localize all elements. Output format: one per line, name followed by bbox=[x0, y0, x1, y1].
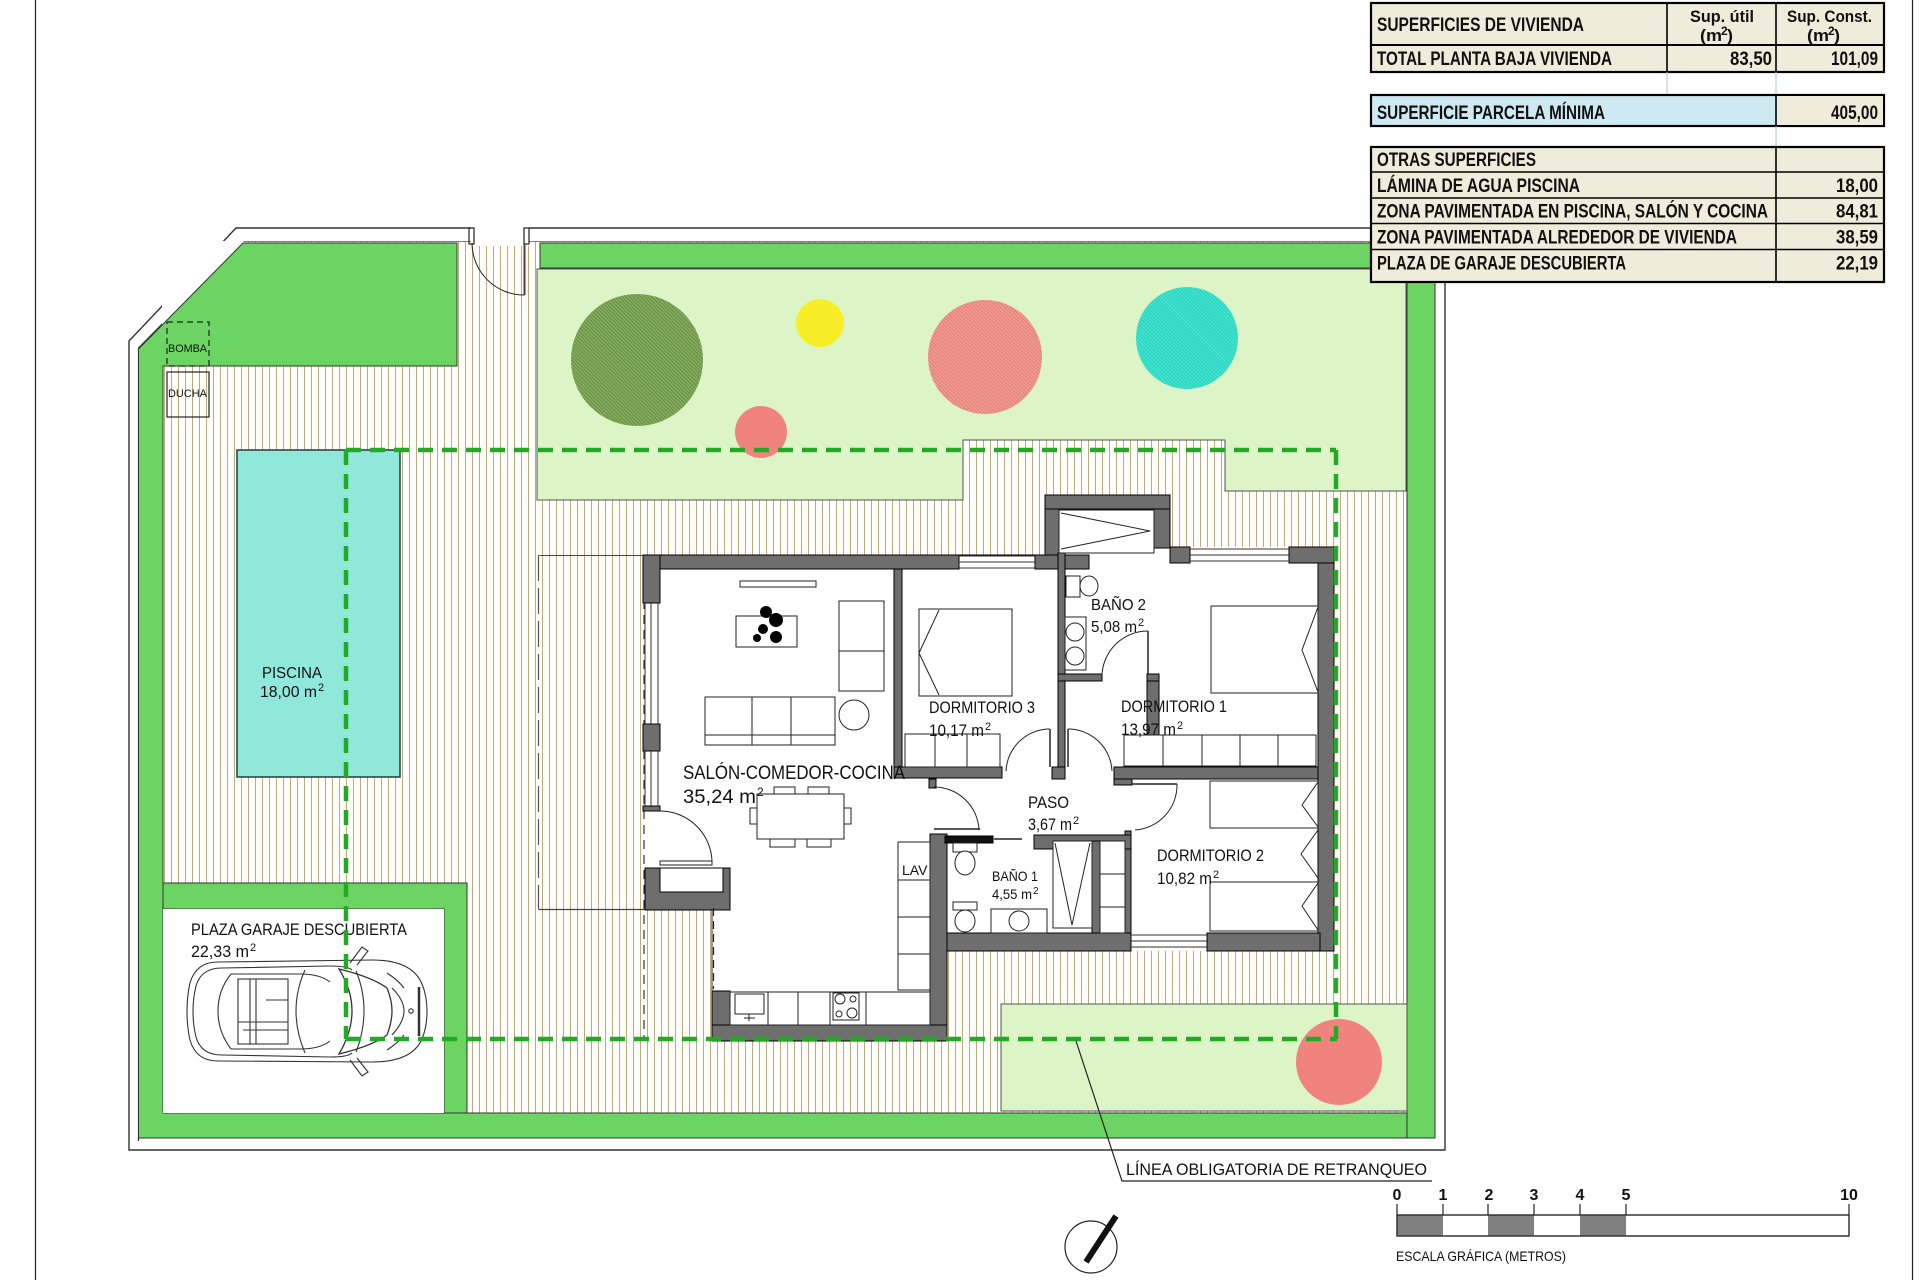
svg-text:ZONA PAVIMENTADA ALREDEDOR DE: ZONA PAVIMENTADA ALREDEDOR DE VIVIENDA bbox=[1377, 228, 1737, 249]
svg-text:10: 10 bbox=[1840, 1187, 1858, 1204]
svg-text:OTRAS SUPERFICIES: OTRAS SUPERFICIES bbox=[1377, 150, 1536, 171]
svg-text:LÁMINA DE AGUA PISCINA: LÁMINA DE AGUA PISCINA bbox=[1377, 175, 1580, 197]
svg-text:DORMITORIO 2: DORMITORIO 2 bbox=[1157, 846, 1264, 865]
svg-text:13,97 m: 13,97 m bbox=[1121, 720, 1176, 739]
svg-text:22,19: 22,19 bbox=[1836, 254, 1878, 275]
svg-text:BAÑO 1: BAÑO 1 bbox=[992, 868, 1038, 884]
svg-text:SUPERFICIES DE VIVIENDA: SUPERFICIES DE VIVIENDA bbox=[1377, 15, 1584, 36]
svg-text:DORMITORIO 3: DORMITORIO 3 bbox=[929, 698, 1035, 717]
svg-text:10,17 m: 10,17 m bbox=[929, 721, 984, 740]
svg-text:3,67 m: 3,67 m bbox=[1028, 815, 1072, 834]
svg-text:SALÓN-COMEDOR-COCINA: SALÓN-COMEDOR-COCINA bbox=[683, 762, 905, 784]
svg-text:SUPERFICIE PARCELA MÍNIMA: SUPERFICIE PARCELA MÍNIMA bbox=[1377, 102, 1605, 124]
svg-text:4,55 m: 4,55 m bbox=[992, 886, 1032, 902]
svg-text:0: 0 bbox=[1393, 1187, 1402, 1204]
svg-text:2: 2 bbox=[1177, 720, 1183, 732]
svg-text:18,00: 18,00 bbox=[1836, 176, 1878, 197]
svg-text:10,82 m: 10,82 m bbox=[1157, 869, 1212, 888]
svg-text:(m ): (m ) bbox=[1700, 26, 1733, 45]
svg-text:4: 4 bbox=[1576, 1187, 1585, 1204]
svg-text:2: 2 bbox=[1138, 617, 1144, 629]
svg-text:83,50: 83,50 bbox=[1730, 49, 1772, 70]
svg-text:84,81: 84,81 bbox=[1836, 202, 1878, 223]
svg-text:405,00: 405,00 bbox=[1831, 103, 1878, 124]
svg-text:TOTAL PLANTA BAJA VIVIENDA: TOTAL PLANTA BAJA VIVIENDA bbox=[1377, 49, 1612, 70]
svg-text:2: 2 bbox=[757, 785, 764, 799]
svg-text:101,09: 101,09 bbox=[1831, 49, 1878, 70]
svg-text:5: 5 bbox=[1622, 1187, 1631, 1204]
svg-text:PASO: PASO bbox=[1028, 793, 1069, 812]
svg-text:2: 2 bbox=[1073, 815, 1079, 827]
svg-text:PLAZA GARAJE DESCUBIERTA: PLAZA GARAJE DESCUBIERTA bbox=[191, 920, 408, 939]
svg-text:DUCHA: DUCHA bbox=[168, 388, 208, 400]
svg-text:35,24 m: 35,24 m bbox=[683, 787, 756, 808]
svg-text:(m ): (m ) bbox=[1807, 26, 1840, 45]
svg-text:LÍNEA OBLIGATORIA DE RETRANQUE: LÍNEA OBLIGATORIA DE RETRANQUEO bbox=[1126, 1160, 1427, 1179]
svg-text:PLAZA DE GARAJE DESCUBIERTA: PLAZA DE GARAJE DESCUBIERTA bbox=[1377, 254, 1626, 275]
svg-text:2: 2 bbox=[985, 721, 991, 733]
svg-text:2: 2 bbox=[1828, 24, 1835, 38]
svg-text:LAV: LAV bbox=[902, 862, 928, 878]
svg-text:22,33 m: 22,33 m bbox=[191, 942, 249, 961]
svg-text:ESCALA GRÁFICA (METROS): ESCALA GRÁFICA (METROS) bbox=[1396, 1248, 1566, 1264]
svg-text:3: 3 bbox=[1530, 1187, 1539, 1204]
svg-text:1: 1 bbox=[1439, 1187, 1448, 1204]
svg-text:5,08 m: 5,08 m bbox=[1091, 619, 1137, 636]
svg-text:2: 2 bbox=[318, 682, 324, 694]
svg-text:2: 2 bbox=[1213, 869, 1219, 881]
svg-text:2: 2 bbox=[1721, 24, 1728, 38]
svg-text:PISCINA: PISCINA bbox=[262, 665, 322, 682]
svg-text:2: 2 bbox=[1485, 1187, 1494, 1204]
svg-text:18,00 m: 18,00 m bbox=[260, 684, 317, 701]
svg-text:ZONA PAVIMENTADA EN PISCINA, S: ZONA PAVIMENTADA EN PISCINA, SALÓN Y COC… bbox=[1377, 201, 1768, 223]
svg-text:2: 2 bbox=[250, 942, 256, 954]
svg-text:38,59: 38,59 bbox=[1836, 228, 1878, 249]
svg-text:2: 2 bbox=[1033, 886, 1039, 897]
svg-text:BOMBA: BOMBA bbox=[168, 343, 208, 355]
svg-text:DORMITORIO 1: DORMITORIO 1 bbox=[1121, 697, 1227, 716]
svg-text:BAÑO 2: BAÑO 2 bbox=[1091, 594, 1146, 614]
